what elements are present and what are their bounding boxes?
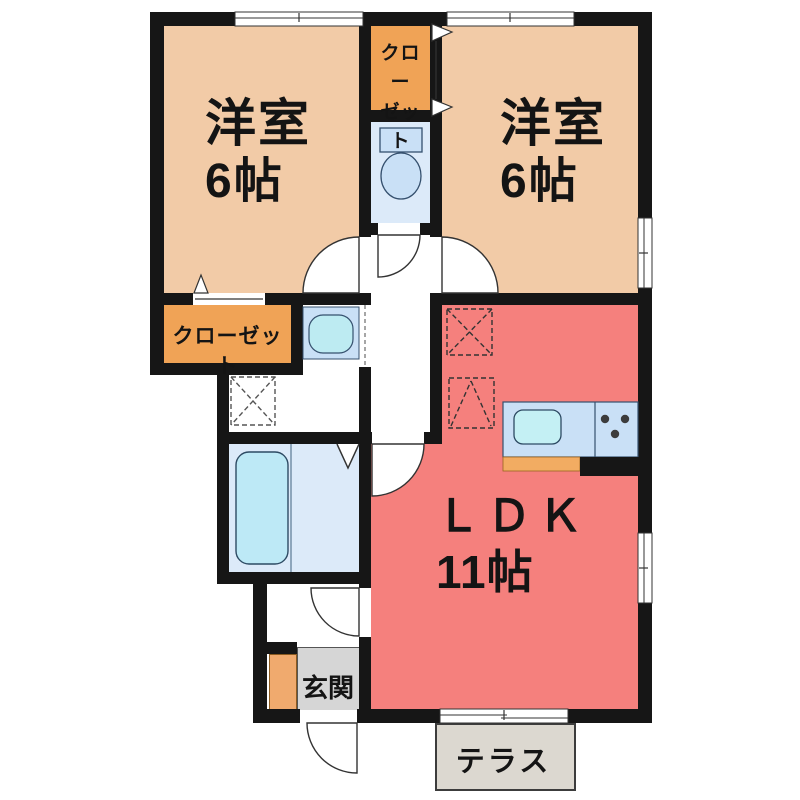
wall-center-left-1 xyxy=(359,26,371,237)
room-washroom-upper xyxy=(303,305,359,432)
bedroom-left-label: 洋室 6帖 xyxy=(205,94,311,211)
wall-genkan-stub xyxy=(253,642,297,654)
terrace-label: テラス xyxy=(435,738,572,780)
wall-bedroomleft-bottom-r xyxy=(265,293,371,305)
sliding-door-terrace-icon xyxy=(440,709,568,723)
ldk-label: ＬＤＫ 11帖 xyxy=(436,490,589,600)
wall-bath-bottom xyxy=(217,572,371,584)
closet-top-line2: ゼット xyxy=(371,98,430,157)
closet-side-label: クローゼット xyxy=(164,320,291,380)
wall-mid-horizontal-r xyxy=(424,432,442,444)
wall-mid-horizontal-l xyxy=(217,432,372,444)
wall-right-2 xyxy=(638,288,652,533)
wall-right-3 xyxy=(638,603,652,723)
wall-center-left-2 xyxy=(359,367,371,588)
wall-bedroomleft-bottom-l xyxy=(150,293,193,305)
closet-top-line1: クロー xyxy=(371,39,430,98)
wall-bottom-1 xyxy=(253,709,300,723)
ldk-size: 11帖 xyxy=(436,544,589,600)
room-bathroom xyxy=(229,444,359,572)
open-passage-dashed xyxy=(360,305,370,367)
wall-toilet-bottom-r xyxy=(420,223,442,235)
wall-left-upper xyxy=(150,12,164,375)
bedroom-right-label: 洋室 6帖 xyxy=(500,94,606,211)
wall-toilet-bottom-l xyxy=(359,223,378,235)
window-ldk-side-icon xyxy=(638,533,652,603)
bedroom-right-size: 6帖 xyxy=(500,154,606,211)
entrance-label: 玄関 xyxy=(297,668,359,705)
wall-center-right-2 xyxy=(430,293,442,444)
door-swing-front-door xyxy=(307,723,357,773)
wall-closet-side-right xyxy=(291,305,303,363)
floor-plan: 洋室 6帖 洋室 6帖 クロー ゼット クローゼット ＬＤＫ 11帖 玄関 テラ… xyxy=(0,0,800,800)
wall-center-right-1 xyxy=(430,26,442,237)
bedroom-left-name: 洋室 xyxy=(205,94,311,154)
ldk-name: ＬＤＫ xyxy=(436,490,589,544)
shoe-cabinet xyxy=(269,654,297,711)
wall-bottom-3 xyxy=(568,709,652,723)
wall-bottom-2 xyxy=(357,709,440,723)
room-washroom-lower xyxy=(229,375,303,432)
window-bedroom-right-icon xyxy=(447,12,574,26)
wall-top-2 xyxy=(363,12,447,26)
wall-right-1 xyxy=(638,12,652,218)
bedroom-left-size: 6帖 xyxy=(205,154,311,211)
wall-bedroomright-bottom xyxy=(430,293,652,305)
room-hallway xyxy=(371,235,430,432)
window-bedroom-right-side-icon xyxy=(638,218,652,288)
room-ldk-strip xyxy=(371,444,442,709)
window-bedroom-left-icon xyxy=(235,12,363,26)
wall-bath-left xyxy=(217,375,229,584)
closet-top-label: クロー ゼット xyxy=(371,39,430,157)
bedroom-right-name: 洋室 xyxy=(500,94,606,154)
